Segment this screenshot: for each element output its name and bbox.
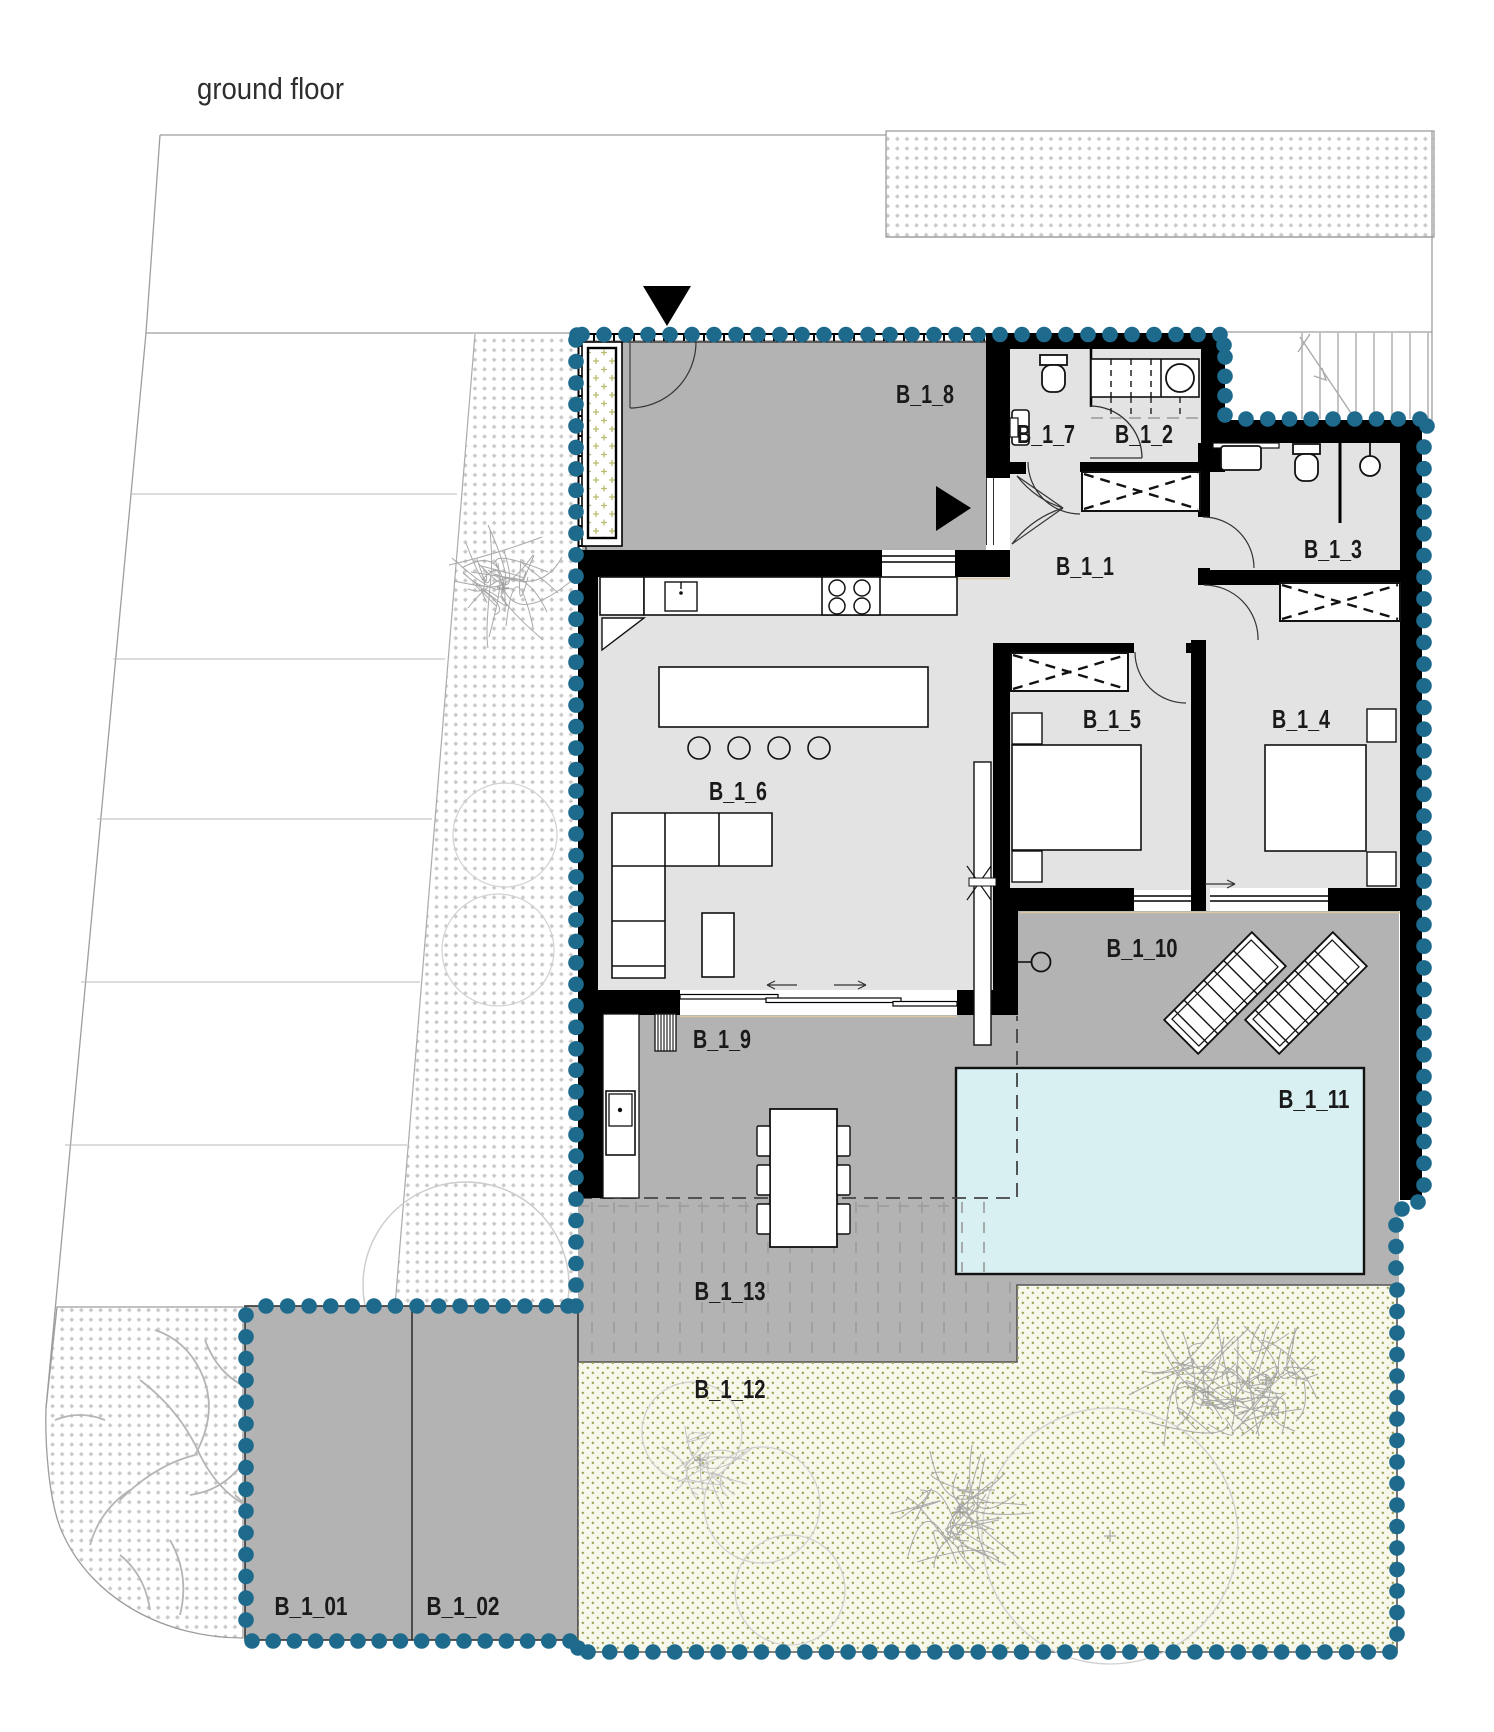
svg-text:B_1_11: B_1_11 (1279, 1084, 1350, 1114)
svg-text:B_1_02: B_1_02 (427, 1591, 500, 1621)
svg-text:B_1_7: B_1_7 (1017, 419, 1075, 449)
svg-text:B_1_3: B_1_3 (1304, 534, 1362, 564)
svg-text:B_1_5: B_1_5 (1083, 704, 1141, 734)
svg-text:B_1_01: B_1_01 (275, 1591, 348, 1621)
svg-text:B_1_13: B_1_13 (695, 1276, 766, 1306)
svg-text:B_1_2: B_1_2 (1115, 419, 1173, 449)
svg-text:B_1_12: B_1_12 (695, 1374, 766, 1404)
svg-text:B_1_1: B_1_1 (1056, 551, 1114, 581)
svg-text:ground floor: ground floor (197, 71, 344, 106)
svg-text:B_1_9: B_1_9 (693, 1024, 751, 1054)
svg-text:B_1_10: B_1_10 (1107, 933, 1178, 963)
svg-text:B_1_4: B_1_4 (1272, 704, 1330, 734)
svg-text:B_1_8: B_1_8 (896, 379, 954, 409)
svg-text:B_1_6: B_1_6 (709, 776, 767, 806)
